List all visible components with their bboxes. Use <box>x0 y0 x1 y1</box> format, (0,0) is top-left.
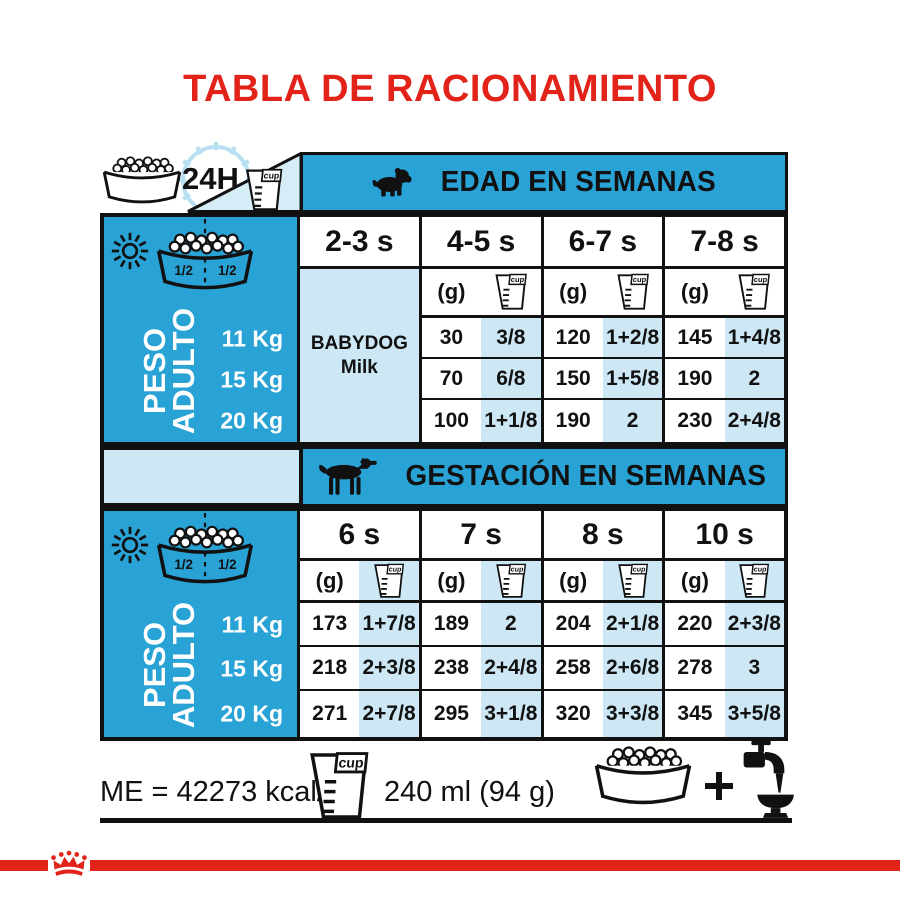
weight-15kg: 15 Kg <box>220 656 283 683</box>
svg-text:cup: cup <box>754 275 769 284</box>
gest-cell-15kg-6s: 2182+3/8 <box>297 647 419 691</box>
age-col-4-5s: 4-5 s <box>419 217 541 269</box>
sun-icon <box>110 525 150 565</box>
cup-volume-label: 240 ml (94 g) <box>384 776 555 809</box>
gest-cell-20kg-8s: 3203+3/8 <box>541 691 663 737</box>
adult-weight-sidebar: 1/2 1/2 PESOADULTO 11 Kg 15 Kg 20 Kg <box>104 217 297 442</box>
age-cell-11kg-6-7s: 1201+2/8 <box>541 318 663 359</box>
measuring-cup-icon: cup <box>495 563 527 599</box>
weight-15kg: 15 Kg <box>220 367 283 394</box>
kibble-bowl-icon <box>584 746 702 816</box>
age-table-body: 1/2 1/2 PESOADULTO 11 Kg 15 Kg 20 Kg 2-3… <box>100 213 788 446</box>
measuring-cup-icon: cup <box>494 273 528 311</box>
gestation-table-body: 1/2 1/2 PESOADULTO 11 Kg 15 Kg 20 Kg 6 s… <box>100 507 788 741</box>
gest-subheader-units: (g) cup <box>541 561 663 603</box>
age-cell-20kg-6-7s: 1902 <box>541 400 663 442</box>
svg-text:cup: cup <box>510 564 524 573</box>
measuring-cup-icon: cup <box>308 750 370 822</box>
age-subheader-units: (g) cup <box>419 269 541 318</box>
gest-col-7s: 7 s <box>419 511 541 561</box>
half-half-bowl-icon: 1/2 1/2 <box>146 219 264 301</box>
measuring-cup-icon: cup <box>616 273 650 311</box>
gest-col-10s: 10 s <box>662 511 784 561</box>
age-header-band: EDAD EN SEMANAS <box>300 152 788 213</box>
gest-cell-11kg-8s: 2042+1/8 <box>541 603 663 647</box>
age-cell-11kg-4-5s: 303/8 <box>419 318 541 359</box>
age-subheader-units: (g) cup <box>541 269 663 318</box>
brand-stripe <box>90 860 900 871</box>
sun-icon <box>110 231 150 271</box>
svg-text:1/2: 1/2 <box>174 263 193 278</box>
measuring-cup-icon: cup <box>738 563 770 599</box>
svg-text:cup: cup <box>338 755 365 771</box>
gest-cell-11kg-7s: 1892 <box>419 603 541 647</box>
svg-text:1/2: 1/2 <box>218 263 237 278</box>
age-cell-20kg-4-5s: 1001+1/8 <box>419 400 541 442</box>
svg-text:1/2: 1/2 <box>174 557 193 572</box>
age-col-6-7s: 6-7 s <box>541 217 663 269</box>
svg-text:cup: cup <box>510 275 525 284</box>
age-cell-20kg-7-8s: 2302+4/8 <box>662 400 784 442</box>
age-cell-11kg-7-8s: 1451+4/8 <box>662 318 784 359</box>
age-subheader-units: (g) cup <box>662 269 784 318</box>
gest-col-6s: 6 s <box>297 511 419 561</box>
gestation-header-label: GESTACIÓN EN SEMANAS <box>406 460 767 493</box>
gestation-spacer-cell <box>100 446 303 507</box>
gest-cell-15kg-7s: 2382+4/8 <box>419 647 541 691</box>
svg-text:cup: cup <box>632 564 646 573</box>
footer-divider <box>100 818 792 823</box>
svg-text:cup: cup <box>388 564 402 573</box>
weight-20kg: 20 Kg <box>220 701 283 728</box>
gest-cell-11kg-10s: 2202+3/8 <box>662 603 784 647</box>
moon-icon <box>265 523 291 553</box>
age-cell-15kg-6-7s: 1501+5/8 <box>541 359 663 400</box>
ration-table-page: TABLA DE RACIONAMIENTO <box>0 0 900 900</box>
age-header-label: EDAD EN SEMANAS <box>440 166 715 199</box>
measuring-cup-icon: cup <box>244 168 284 212</box>
gest-subheader-units: (g) cup <box>662 561 784 603</box>
adult-dog-icon <box>314 456 378 498</box>
gestation-header-band: GESTACIÓN EN SEMANAS <box>300 446 788 507</box>
age-cell-15kg-7-8s: 1902 <box>662 359 784 400</box>
brand-stripe <box>0 860 48 871</box>
measuring-cup-icon: cup <box>373 563 405 599</box>
measuring-cup-icon: cup <box>617 563 649 599</box>
weight-11kg: 11 Kg <box>222 612 283 639</box>
gest-col-8s: 8 s <box>541 511 663 561</box>
svg-text:cup: cup <box>632 275 647 284</box>
age-col-2-3s: 2-3 s <box>297 217 419 269</box>
weight-11kg: 11 Kg <box>222 326 283 353</box>
svg-text:1/2: 1/2 <box>218 557 237 572</box>
gest-cell-15kg-8s: 2582+6/8 <box>541 647 663 691</box>
gest-cell-15kg-10s: 2783 <box>662 647 784 691</box>
babydog-milk-cell: BABYDOG Milk <box>297 269 419 442</box>
age-cell-15kg-4-5s: 706/8 <box>419 359 541 400</box>
moon-icon <box>265 229 291 259</box>
gest-cell-20kg-10s: 3453+5/8 <box>662 691 784 737</box>
adult-weight-sidebar: 1/2 1/2 PESOADULTO 11 Kg 15 Kg 20 Kg <box>104 511 297 737</box>
ration-table: cup EDAD EN SEMANAS <box>100 152 788 741</box>
gest-subheader-units: (g) cup <box>297 561 419 603</box>
adult-weight-label: PESOADULTO <box>113 308 225 434</box>
weight-20kg: 20 Kg <box>220 408 283 435</box>
measuring-cup-icon: cup <box>737 273 771 311</box>
svg-text:cup: cup <box>754 564 768 573</box>
gest-cell-11kg-6s: 1731+7/8 <box>297 603 419 647</box>
water-tap-icon <box>732 740 794 822</box>
half-half-bowl-icon: 1/2 1/2 <box>146 513 264 595</box>
gest-cell-20kg-6s: 2712+7/8 <box>297 691 419 737</box>
adult-weight-label: PESOADULTO <box>113 602 225 728</box>
age-col-7-8s: 7-8 s <box>662 217 784 269</box>
plus-icon <box>705 772 733 800</box>
puppy-icon <box>367 166 415 200</box>
page-title: TABLA DE RACIONAMIENTO <box>0 68 900 111</box>
gest-subheader-units: (g) cup <box>419 561 541 603</box>
svg-text:cup: cup <box>263 171 280 181</box>
crown-icon <box>49 849 89 879</box>
gest-cell-20kg-7s: 2953+1/8 <box>419 691 541 737</box>
